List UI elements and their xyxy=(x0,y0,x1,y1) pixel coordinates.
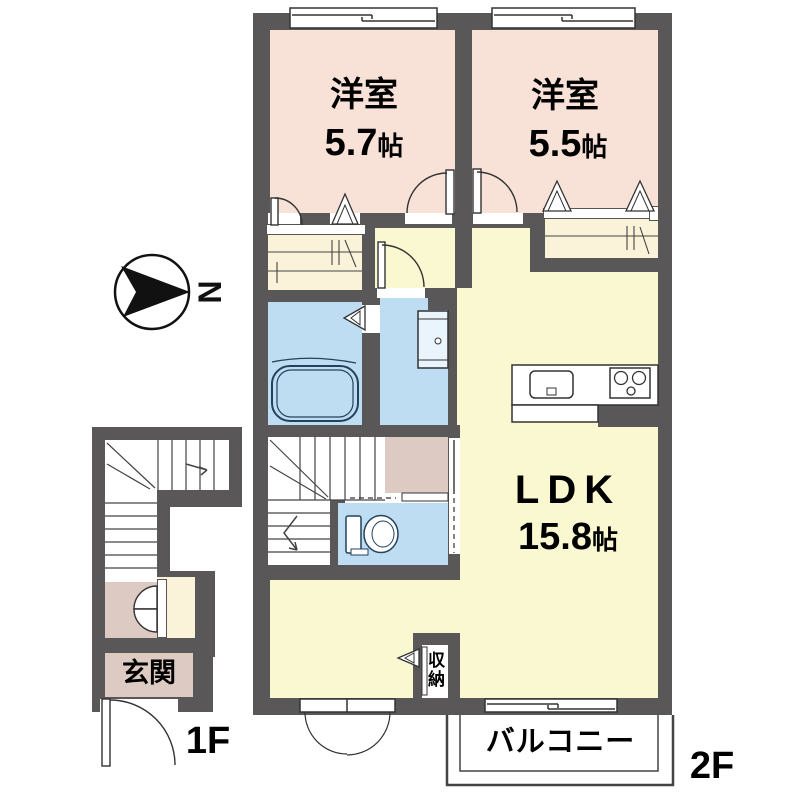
bedroom-2-size: 5.5帖 xyxy=(497,125,639,163)
compass-north-label: N xyxy=(192,280,228,303)
floor-plan: N 洋室 5.7帖 洋室 5.5帖 LDK 15.8帖 玄関 バルコニー 収納 … xyxy=(0,0,800,800)
bedroom-1-size: 5.7帖 xyxy=(293,124,435,162)
casement-arcs xyxy=(305,712,390,755)
kitchen-counter xyxy=(512,365,658,422)
toilet xyxy=(346,516,398,556)
ldk-size: 15.8帖 xyxy=(494,518,642,556)
closet-hatches xyxy=(268,226,658,283)
bedroom-2-name: 洋室 xyxy=(499,79,631,113)
entrance-label: 玄関 xyxy=(105,660,193,687)
stairs-1f-lines xyxy=(105,440,214,568)
bedroom-1-name: 洋室 xyxy=(298,78,430,112)
floor-2f-label: 2F xyxy=(682,747,742,785)
vanity xyxy=(418,311,448,368)
ldk-name: LDK xyxy=(494,470,642,510)
bathtub xyxy=(272,358,358,421)
floor-1f-label: 1F xyxy=(178,722,238,760)
storage-label: 収納 xyxy=(426,651,443,689)
balcony-label: バルコニー xyxy=(468,728,653,757)
compass: N xyxy=(115,255,228,329)
